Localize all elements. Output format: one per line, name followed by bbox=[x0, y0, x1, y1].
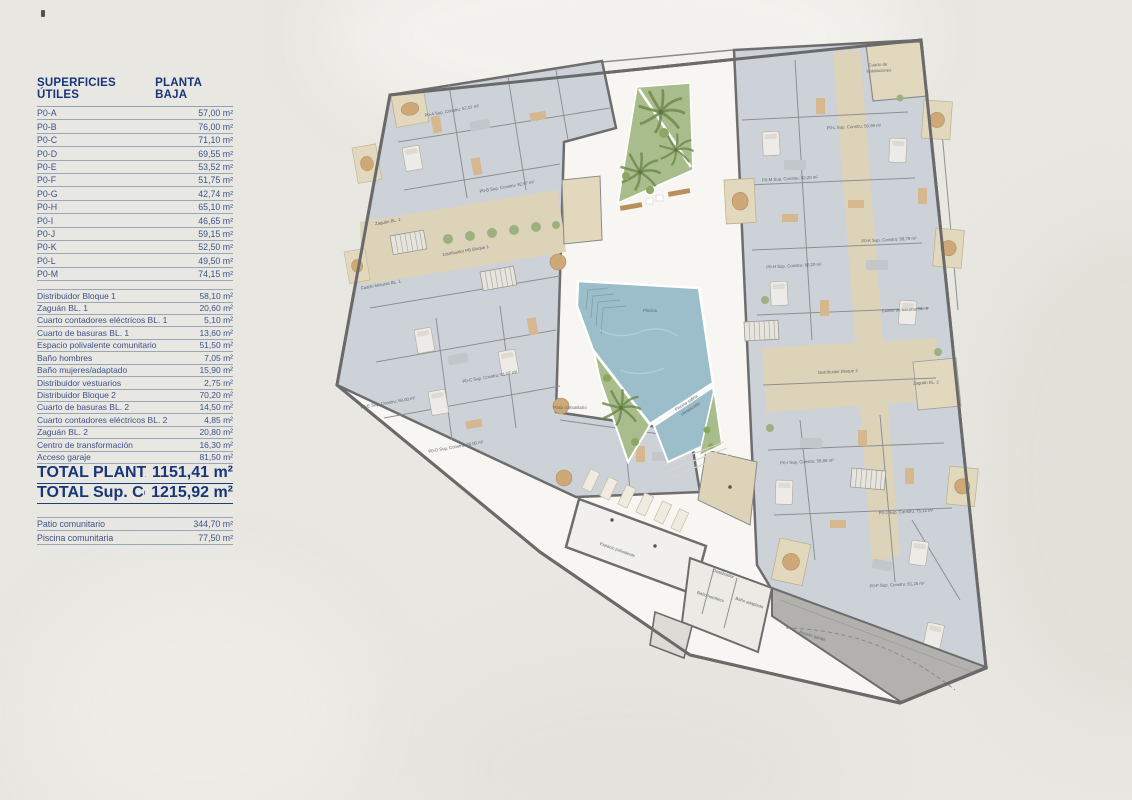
row-value: 4,85 m² bbox=[198, 415, 233, 425]
row-label: P0-A bbox=[37, 108, 57, 118]
terrace bbox=[724, 178, 756, 224]
row-label: P0-K bbox=[37, 242, 57, 252]
table-row: P0-I46,65 m² bbox=[37, 214, 233, 227]
table-row: P0-K52,50 m² bbox=[37, 241, 233, 254]
row-value: 53,52 m² bbox=[192, 162, 233, 172]
plan-label: Piscina bbox=[643, 308, 657, 313]
right-block bbox=[724, 40, 986, 668]
table-row: P0-F51,75 m² bbox=[37, 174, 233, 187]
row-label: P0-G bbox=[37, 189, 58, 199]
table-row: TOTAL PLANTA BAJA1151,41 m² bbox=[37, 464, 233, 484]
table-row: Cuarto contadores eléctricos BL. 15,10 m… bbox=[37, 315, 233, 327]
row-label: Cuarto contadores eléctricos BL. 2 bbox=[37, 415, 167, 425]
row-value: 57,00 m² bbox=[192, 108, 233, 118]
row-label: P0-E bbox=[37, 162, 57, 172]
table-row: Acceso garaje81,50 m² bbox=[37, 452, 233, 464]
common-areas-table: Distribuidor Bloque 158,10 m²Zaguán BL. … bbox=[37, 289, 233, 464]
table-row: P0-G42,74 m² bbox=[37, 187, 233, 200]
table-row: P0-B76,00 m² bbox=[37, 120, 233, 133]
row-label: P0-M bbox=[37, 269, 58, 279]
row-label: Distribuidor Bloque 2 bbox=[37, 390, 116, 400]
unit-areas-table: P0-A57,00 m²P0-B76,00 m²P0-C71,10 m²P0-D… bbox=[37, 107, 233, 281]
table-row: TOTAL Sup. Construida.1215,92 m² bbox=[37, 484, 233, 504]
table-row: Distribuidor Bloque 270,20 m² bbox=[37, 390, 233, 402]
row-label: P0-I bbox=[37, 216, 53, 226]
row-value: 52,50 m² bbox=[192, 242, 233, 252]
row-value: 2,75 m² bbox=[198, 378, 233, 388]
stairs-icon bbox=[744, 320, 779, 341]
table-row: Espacio polivalente comunitario51,50 m² bbox=[37, 340, 233, 352]
paver bbox=[656, 195, 663, 201]
row-label: Baño mujeres/adaptado bbox=[37, 365, 127, 375]
bed-icon bbox=[898, 300, 917, 325]
table-row: Baño hombres7,05 m² bbox=[37, 352, 233, 364]
table-row: Zaguán BL. 220,80 m² bbox=[37, 427, 233, 439]
table-row: Distribuidor Bloque 158,10 m² bbox=[37, 290, 233, 302]
table-row: P0-D69,55 m² bbox=[37, 147, 233, 160]
floor-title: PLANTA BAJA bbox=[155, 77, 233, 101]
legend-title: SUPERFICIES ÚTILES bbox=[37, 77, 155, 101]
table-row: Cuarto de basuras BL. 113,60 m² bbox=[37, 327, 233, 339]
row-label: Cuarto de basuras BL. 2 bbox=[37, 402, 129, 412]
table-row: Cuarto contadores eléctricos BL. 24,85 m… bbox=[37, 414, 233, 426]
row-label: P0-B bbox=[37, 122, 57, 132]
table-row: Patio comunitario344,70 m² bbox=[37, 518, 233, 531]
row-value: 81,50 m² bbox=[193, 452, 233, 462]
row-value: 69,55 m² bbox=[192, 149, 233, 159]
row-value: 42,74 m² bbox=[192, 189, 233, 199]
terrace bbox=[921, 100, 952, 140]
plan-label: Patio comunitario bbox=[553, 405, 587, 410]
row-value: 46,65 m² bbox=[192, 216, 233, 226]
row-label: P0-C bbox=[37, 135, 57, 145]
row-label: P0-F bbox=[37, 175, 56, 185]
table-row: P0-H65,10 m² bbox=[37, 201, 233, 214]
stairs-icon bbox=[850, 468, 886, 490]
outdoor-areas-table: Patio comunitario344,70 m²Piscina comuni… bbox=[37, 517, 233, 544]
row-label: Centro de transformación bbox=[37, 440, 133, 450]
row-label: Zaguán BL. 1 bbox=[37, 303, 88, 313]
row-value: 65,10 m² bbox=[192, 202, 233, 212]
bed-icon bbox=[428, 389, 449, 416]
row-label: P0-D bbox=[37, 149, 57, 159]
row-label: Distribuidor vestuarios bbox=[37, 378, 121, 388]
bed-icon bbox=[889, 138, 907, 163]
areas-legend: SUPERFICIES ÚTILES PLANTA BAJA P0-A57,00… bbox=[37, 77, 233, 545]
row-value: 1151,41 m² bbox=[146, 464, 233, 482]
row-value: 59,15 m² bbox=[192, 229, 233, 239]
bed-icon bbox=[414, 327, 435, 354]
row-label: Patio comunitario bbox=[37, 519, 105, 529]
row-label: TOTAL Sup. Construida. bbox=[37, 484, 145, 502]
table-row: Distribuidor vestuarios2,75 m² bbox=[37, 377, 233, 389]
table-row: Zaguán BL. 120,60 m² bbox=[37, 303, 233, 315]
row-value: 74,15 m² bbox=[192, 269, 233, 279]
bed-icon bbox=[775, 480, 793, 505]
bed-icon bbox=[762, 131, 780, 156]
bed-icon bbox=[402, 145, 423, 172]
terrace bbox=[933, 228, 965, 268]
table-row: P0-C71,10 m² bbox=[37, 134, 233, 147]
table-row: Centro de transformación16,30 m² bbox=[37, 439, 233, 451]
row-value: 7,05 m² bbox=[198, 353, 233, 363]
row-value: 49,50 m² bbox=[192, 256, 233, 266]
row-label: Distribuidor Bloque 1 bbox=[37, 291, 116, 301]
plan-label: Cuarto de bbox=[868, 61, 888, 67]
terrace bbox=[946, 466, 978, 507]
row-value: 76,00 m² bbox=[192, 122, 233, 132]
row-value: 16,30 m² bbox=[193, 440, 233, 450]
table-row: Piscina comunitaria77,50 m² bbox=[37, 531, 233, 544]
row-value: 13,60 m² bbox=[193, 328, 233, 338]
table-row: P0-J59,15 m² bbox=[37, 228, 233, 241]
totals-table: TOTAL PLANTA BAJA1151,41 m²TOTAL Sup. Co… bbox=[37, 464, 233, 504]
row-label: P0-H bbox=[37, 202, 57, 212]
row-value: 51,50 m² bbox=[193, 340, 233, 350]
table-row: P0-L49,50 m² bbox=[37, 254, 233, 267]
row-label: TOTAL PLANTA BAJA bbox=[37, 464, 146, 482]
table-row: P0-A57,00 m² bbox=[37, 107, 233, 120]
row-value: 14,50 m² bbox=[193, 402, 233, 412]
row-label: Piscina comunitaria bbox=[37, 533, 113, 543]
row-label: Acceso garaje bbox=[37, 452, 91, 462]
row-value: 51,75 m² bbox=[192, 175, 233, 185]
row-value: 344,70 m² bbox=[187, 519, 233, 529]
row-label: P0-L bbox=[37, 256, 56, 266]
bed-icon bbox=[770, 281, 788, 306]
row-value: 58,10 m² bbox=[193, 291, 233, 301]
row-value: 20,60 m² bbox=[193, 303, 233, 313]
bed-icon bbox=[909, 540, 929, 566]
plan-sheet: P0-A Sup. Constru: 67,07 m²P0-B Sup. Con… bbox=[0, 0, 1132, 800]
row-label: Baño hombres bbox=[37, 353, 92, 363]
paver bbox=[646, 198, 653, 204]
table-row: P0-E53,52 m² bbox=[37, 161, 233, 174]
terrace bbox=[391, 90, 429, 127]
row-label: Cuarto contadores eléctricos BL. 1 bbox=[37, 315, 167, 325]
row-value: 20,80 m² bbox=[193, 427, 233, 437]
table-row: Cuarto de basuras BL. 214,50 m² bbox=[37, 402, 233, 414]
row-label: Zaguán BL. 2 bbox=[37, 427, 88, 437]
row-label: P0-J bbox=[37, 229, 55, 239]
row-value: 15,90 m² bbox=[193, 365, 233, 375]
row-value: 70,20 m² bbox=[193, 390, 233, 400]
row-value: 77,50 m² bbox=[192, 533, 233, 543]
bay-window bbox=[562, 176, 602, 244]
row-value: 71,10 m² bbox=[192, 135, 233, 145]
porch-column bbox=[728, 485, 732, 489]
row-value: 5,10 m² bbox=[198, 315, 233, 325]
table-row: Baño mujeres/adaptado15,90 m² bbox=[37, 365, 233, 377]
legend-header: SUPERFICIES ÚTILES PLANTA BAJA bbox=[37, 77, 233, 107]
row-label: Cuarto de basuras BL. 1 bbox=[37, 328, 129, 338]
row-label: Espacio polivalente comunitario bbox=[37, 340, 157, 350]
row-value: 1215,92 m² bbox=[145, 484, 233, 502]
table-row: P0-M74,15 m² bbox=[37, 268, 233, 281]
